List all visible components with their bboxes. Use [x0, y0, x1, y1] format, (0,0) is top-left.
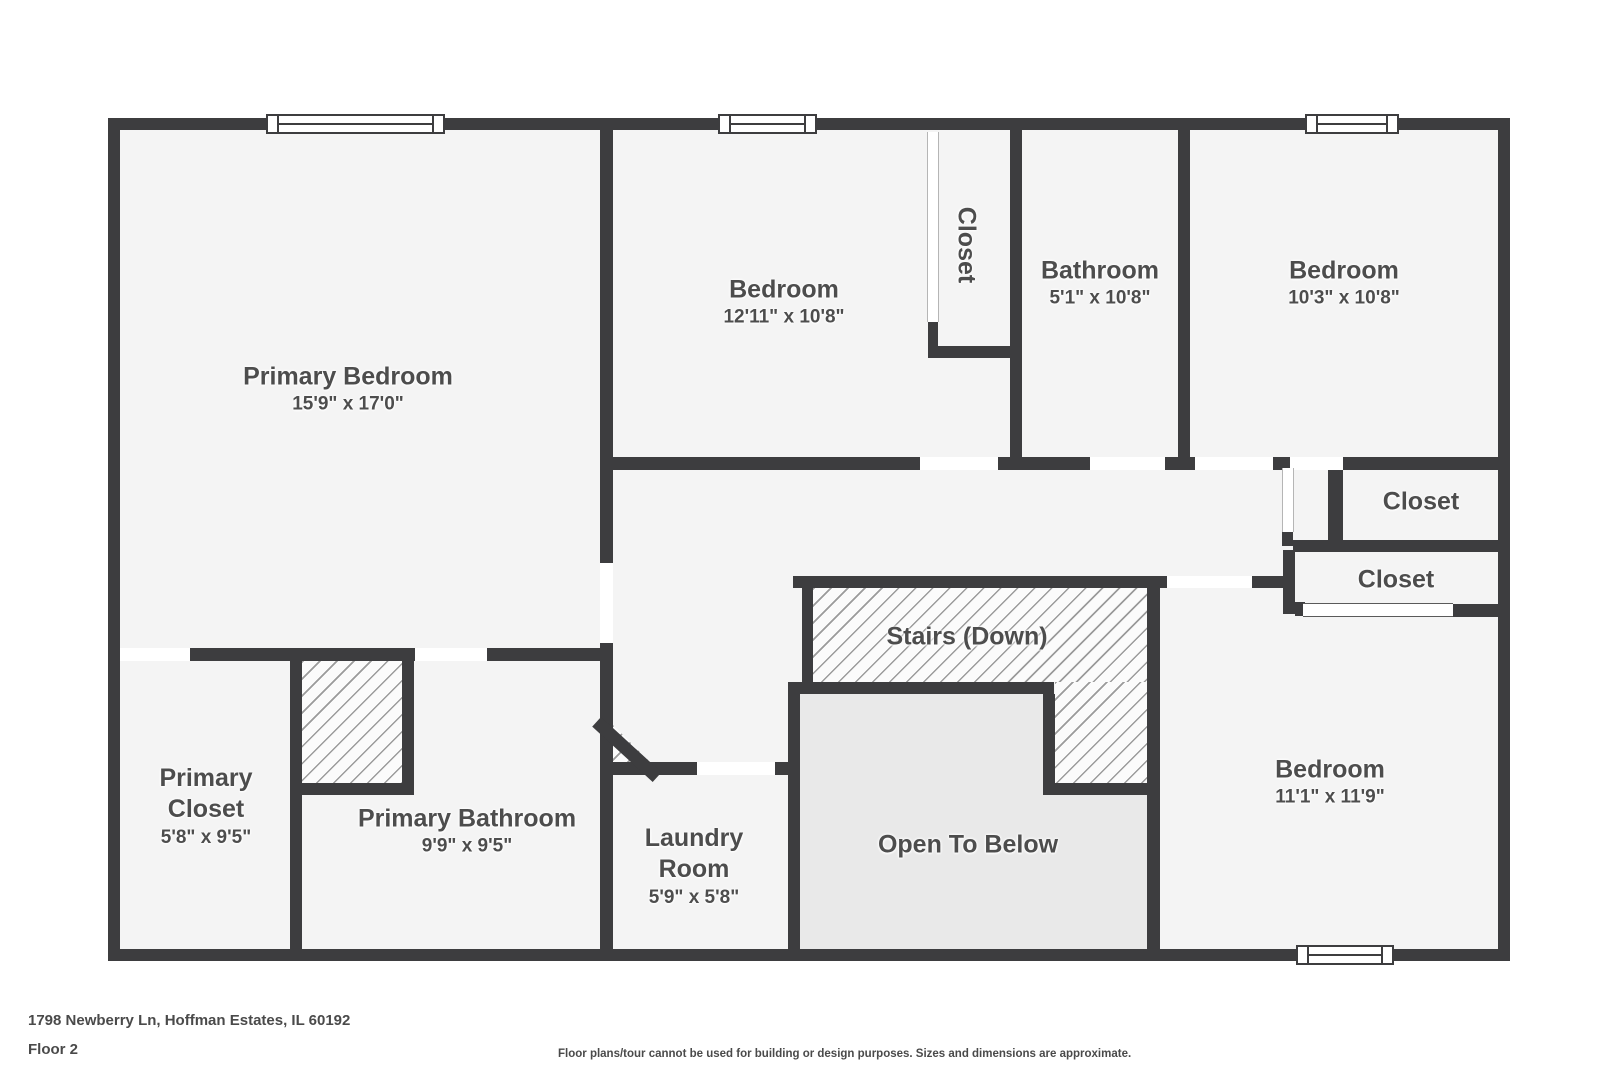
wall	[1293, 540, 1498, 552]
floor-plan: Primary Bedroom 15'9" x 17'0" Bedroom 12…	[0, 0, 1620, 1080]
room-label-bedroom-bottom: Bedroom 11'1" x 11'9"	[1275, 755, 1385, 810]
floor-label: Floor 2	[28, 1041, 78, 1058]
wall	[1178, 130, 1190, 470]
room-name: Stairs (Down)	[886, 621, 1047, 652]
stairs-hatch	[1055, 682, 1147, 783]
window	[1296, 945, 1394, 965]
room-name: Room	[645, 854, 744, 885]
door-opening	[697, 762, 775, 775]
shower-hatch	[302, 661, 402, 783]
door-opening	[1090, 457, 1165, 470]
window-jamb	[432, 116, 434, 132]
wall	[290, 648, 302, 949]
wall	[928, 346, 1010, 358]
wall	[600, 130, 613, 949]
door-opening	[600, 563, 613, 643]
window-jamb	[1381, 947, 1383, 963]
room-dims: 5'1" x 10'8"	[1041, 287, 1159, 311]
room-label-bedroom-right: Bedroom 10'3" x 10'8"	[1288, 256, 1400, 311]
room-dims: 5'8" x 9'5"	[159, 825, 252, 849]
window-jamb	[277, 116, 279, 132]
room-name: Laundry	[645, 823, 744, 854]
room-name: Primary Bathroom	[358, 804, 576, 835]
wall	[1010, 130, 1022, 470]
room-name: Closet	[950, 207, 981, 283]
room-name: Bedroom	[723, 275, 844, 306]
room-name: Open To Below	[878, 829, 1058, 860]
wall	[1147, 576, 1160, 949]
window-jamb	[1386, 116, 1388, 132]
room-label-primary-closet: Primary Closet 5'8" x 9'5"	[159, 763, 252, 849]
door-opening	[1167, 576, 1252, 588]
room-label-primary-bedroom: Primary Bedroom 15'9" x 17'0"	[243, 362, 453, 417]
room-label-open-to-below: Open To Below	[878, 829, 1058, 860]
window-jamb	[1316, 116, 1318, 132]
room-name: Primary Bedroom	[243, 362, 453, 393]
wall	[1043, 694, 1055, 795]
room-name: Bedroom	[1275, 755, 1385, 786]
room-dims: 12'11" x 10'8"	[723, 306, 844, 330]
disclaimer-text: Floor plans/tour cannot be used for buil…	[558, 1048, 1131, 1060]
room-name: Closet	[1358, 564, 1434, 595]
room-dims: 15'9" x 17'0"	[243, 393, 453, 417]
wall	[108, 118, 120, 961]
window	[1305, 114, 1399, 134]
window-jamb	[729, 116, 731, 132]
room-dims: 10'3" x 10'8"	[1288, 287, 1400, 311]
door-opening	[1290, 457, 1343, 470]
wall	[600, 457, 1498, 470]
wall	[1043, 783, 1160, 795]
door-opening	[1195, 457, 1273, 470]
window-jamb	[1307, 947, 1309, 963]
wall	[1283, 550, 1295, 614]
closet-sliding-door	[1303, 603, 1453, 617]
wall	[788, 682, 1054, 694]
room-name: Bathroom	[1041, 256, 1159, 287]
open-to-below-area	[800, 694, 1043, 949]
door-opening	[415, 648, 487, 661]
closet-door	[1282, 468, 1294, 532]
room-label-bedroom-middle: Bedroom 12'11" x 10'8"	[723, 275, 844, 330]
wall	[802, 588, 813, 682]
window	[266, 114, 445, 134]
door-opening	[120, 648, 190, 661]
room-name: Closet	[159, 794, 252, 825]
wall	[1282, 532, 1293, 546]
room-label-closet-upper: Closet	[1383, 486, 1459, 517]
door-opening	[920, 457, 998, 470]
wall	[290, 783, 414, 795]
room-label-laundry: Laundry Room 5'9" x 5'8"	[645, 823, 744, 909]
room-label-bathroom: Bathroom 5'1" x 10'8"	[1041, 256, 1159, 311]
room-name: Closet	[1383, 486, 1459, 517]
wall	[1498, 118, 1510, 961]
room-label-closet-lower: Closet	[1358, 564, 1434, 595]
window	[718, 114, 817, 134]
wall	[788, 682, 800, 949]
wall	[402, 648, 414, 795]
room-label-stairs: Stairs (Down)	[886, 621, 1047, 652]
room-name: Bedroom	[1288, 256, 1400, 287]
wall	[1328, 467, 1343, 544]
room-name: Primary	[159, 763, 252, 794]
open-to-below-area	[1043, 795, 1147, 949]
room-label-primary-bathroom: Primary Bathroom 9'9" x 9'5"	[358, 804, 576, 859]
closet-door	[927, 132, 939, 322]
wall	[1453, 604, 1498, 617]
window-jamb	[804, 116, 806, 132]
room-dims: 11'1" x 11'9"	[1275, 786, 1385, 810]
wall	[928, 322, 938, 358]
room-dims: 5'9" x 5'8"	[645, 885, 744, 909]
room-dims: 9'9" x 9'5"	[358, 835, 576, 859]
address-text: 1798 Newberry Ln, Hoffman Estates, IL 60…	[28, 1012, 350, 1029]
room-label-closet-top: Closet	[950, 207, 981, 283]
